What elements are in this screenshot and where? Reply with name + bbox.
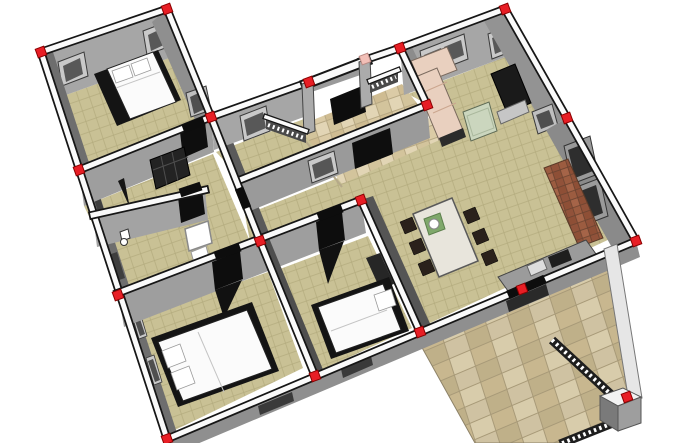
portico-column-left <box>302 80 315 135</box>
centerpiece-bowl <box>429 219 439 229</box>
floorplan-viewport <box>0 0 700 443</box>
floorplan-3d-render <box>0 0 700 443</box>
toilet-bowl <box>121 239 128 246</box>
